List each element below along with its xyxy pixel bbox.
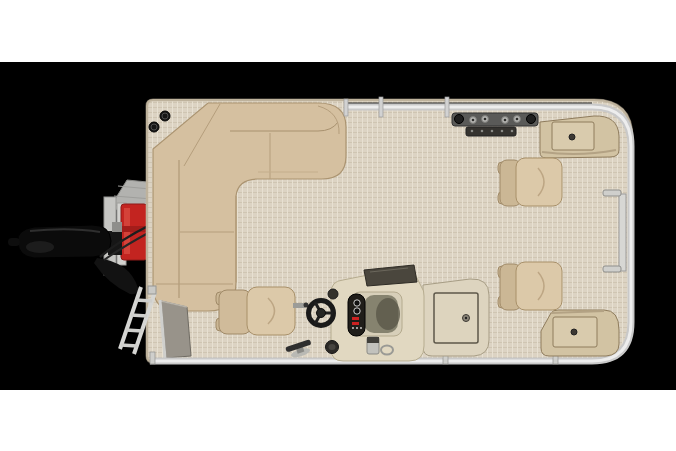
captain-backrest <box>219 290 251 334</box>
bow-gate-frame <box>619 194 626 271</box>
rod-rack-bolt <box>527 115 536 124</box>
switch-red <box>352 322 359 325</box>
boat-floorplan-svg <box>0 62 676 390</box>
cowling-glint <box>26 241 54 253</box>
fence-post <box>445 97 449 117</box>
bow-gate-hinge <box>603 190 621 196</box>
motor-clamp <box>112 222 122 232</box>
livewell-box <box>423 279 489 356</box>
latch-cap <box>367 337 379 343</box>
bow-gate-hinge <box>603 266 621 272</box>
rail-fitting <box>150 352 155 364</box>
bow-storage-bottom <box>541 310 619 356</box>
captain-seat <box>247 287 295 335</box>
dash-recess-shadow <box>376 298 400 330</box>
boat-photo <box>0 62 676 390</box>
rod-ring-hole <box>484 118 487 121</box>
fishing-chair-forward <box>498 158 562 206</box>
bow-storage-top <box>540 116 619 158</box>
rod-rack-bolt <box>455 115 464 124</box>
captain-chair <box>216 287 309 335</box>
fence-post <box>344 99 348 116</box>
gauge-dial <box>354 308 360 314</box>
storage-latch <box>569 134 575 140</box>
rod-ring-hole <box>516 118 519 121</box>
switch-red <box>352 317 359 320</box>
cup-holder-inner <box>329 344 336 350</box>
seat-slider-arm <box>293 303 305 308</box>
instrument-cluster <box>348 294 365 336</box>
livewell-latch-pin <box>465 317 467 319</box>
console-knob <box>328 289 338 299</box>
chair-seat <box>516 158 562 206</box>
motor-handle <box>8 238 20 246</box>
ladder-bracket <box>148 286 156 294</box>
rod-ring-hole <box>472 119 475 122</box>
fence-post <box>379 97 383 117</box>
gauge-dial <box>354 300 360 306</box>
storage-latch <box>571 329 577 335</box>
stern-gate-panel <box>160 300 191 358</box>
rod-rack-bar <box>452 113 538 126</box>
fishing-chair-aft <box>498 262 562 310</box>
livewell-door <box>434 293 478 343</box>
rod-ring-hole <box>504 119 507 122</box>
wheel-hub <box>317 309 326 318</box>
